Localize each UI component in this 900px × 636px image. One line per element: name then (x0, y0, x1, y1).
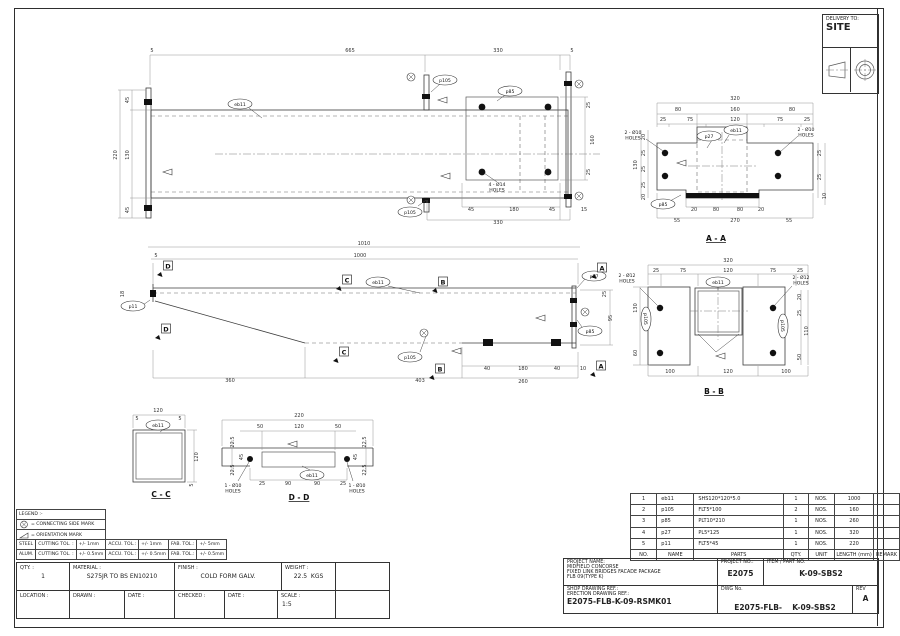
dimension-text: 330 (493, 48, 503, 54)
weight-unit: KGS (311, 573, 323, 580)
parts-cell: p85 (657, 516, 694, 527)
dwg-no-prefix: E2075-FLB- (734, 603, 782, 612)
dimension-text: 80 (713, 207, 719, 213)
dimension-text: 270 (730, 218, 740, 224)
section-marker: D (157, 261, 173, 277)
dimension-text: 120 (153, 408, 163, 414)
parts-cell: 260 (835, 516, 874, 527)
tol-cell: FAB. TOL.: (168, 550, 196, 560)
section-marker: C (336, 275, 352, 291)
svg-text:A: A (599, 265, 604, 273)
tol-cell: ACCU. TOL.: (106, 540, 139, 550)
dimension-text: 5 (150, 48, 153, 54)
hole-note: 1 - Ø10HOLES (225, 482, 242, 495)
parts-cell: eb11 (657, 494, 694, 505)
dimension-text: 10 (822, 193, 828, 199)
dimension-text: 10 (580, 366, 586, 372)
part-balloon: eb11 (300, 470, 324, 480)
project-name-line: FLB 09(TYPE K) (567, 575, 714, 580)
tolerance-row: STEEL CUTTING TOL. : +/- 1mm ACCU. TOL.:… (17, 540, 227, 550)
svg-text:p105: p105 (779, 320, 785, 332)
dimension-text: 55 (786, 218, 792, 224)
svg-text:p27: p27 (705, 134, 714, 140)
parts-cell (874, 527, 900, 538)
shop-ref-cell: SHOP DRAWING REF.: ERECTION DRAWING REF.… (564, 586, 718, 613)
dimension-text: 360 (225, 378, 235, 384)
dimension-text: 25 (817, 174, 823, 180)
parts-cell: 1 (784, 527, 808, 538)
hole-note: 2 - Ø12HOLES (793, 274, 810, 287)
legend-item-text: = ORIENTATION MARK (31, 533, 82, 538)
dimension-text: 25 (586, 102, 592, 108)
section-title: A - A (706, 234, 726, 243)
dimension-text: 1000 (354, 253, 367, 259)
svg-text:B: B (438, 366, 443, 374)
tol-cell: +/- 1mm (139, 540, 169, 550)
dimension-text: 22.5 (362, 436, 368, 447)
dimension-text: 75 (680, 268, 686, 274)
dimension-text: 50 (797, 354, 803, 360)
weight-cell: WEIGHT : 22.5 KGS (282, 563, 336, 591)
elevation-view (148, 247, 613, 378)
scale-value: 1:5 (278, 601, 335, 608)
dimension-text: 22.5 (362, 464, 368, 475)
connecting-side-mark-icon (581, 308, 589, 316)
legend-title: LEGEND :- (17, 510, 105, 519)
parts-row: 1eb11SHS120*120*5.01NOS.1000 (631, 494, 900, 505)
parts-cell: 220 (835, 538, 874, 549)
parts-cell: 1 (631, 494, 657, 505)
dimension-text: 90 (314, 481, 320, 487)
section-sketch-icon (850, 48, 878, 92)
connecting-side-mark-icon (575, 80, 583, 88)
dimension-text: 320 (723, 258, 733, 264)
qty-label: QTY. : (17, 563, 69, 571)
leader-lines (143, 84, 798, 481)
dimension-text: 25 (586, 169, 592, 175)
dimension-text: 25 (340, 481, 346, 487)
parts-cell (874, 538, 900, 549)
dimension-text: 120 (194, 452, 200, 462)
parts-cell: FLT5*100 (694, 505, 784, 516)
svg-text:p85: p85 (586, 329, 595, 335)
orientation-mark-icon (452, 348, 461, 354)
tol-cell: STEEL (17, 540, 36, 550)
dimension-text: 55 (674, 218, 680, 224)
connecting-side-mark-icon (19, 520, 29, 529)
dimension-text: 80 (675, 107, 681, 113)
shop-ref-value: E2075-FLB-K-09-RSMK01 (567, 597, 714, 606)
dimension-text: 25 (259, 481, 265, 487)
drawn-cell: DRAWN : (70, 591, 125, 619)
section-marker: B (429, 364, 445, 380)
dimension-text: 403 (415, 378, 425, 384)
hole-note: 2 - Ø10HOLES (798, 126, 815, 139)
svg-text:D: D (165, 263, 171, 271)
dimension-text: 100 (665, 369, 675, 375)
parts-cell: NOS. (808, 505, 834, 516)
svg-text:p105: p105 (404, 355, 416, 361)
dwg-no-label: DWG No. (721, 587, 849, 592)
dimension-text: 25 (804, 117, 810, 123)
dimension-text: 100 (781, 369, 791, 375)
svg-text:A: A (598, 363, 603, 371)
connecting-side-mark-icon (420, 329, 428, 337)
orientation-mark-icon (677, 160, 686, 166)
dimension-text: 40 (554, 366, 560, 372)
checked-label: CHECKED : (175, 591, 224, 599)
drawn-label: DRAWN : (70, 591, 124, 599)
project-no-cell: PROJECT NO.: E2075 (718, 559, 764, 586)
part-balloon: eb11 (228, 99, 252, 109)
parts-cell (874, 516, 900, 527)
parts-table: 1eb11SHS120*120*5.01NOS.10002p105FLT5*10… (630, 493, 900, 561)
parts-cell: 2 (784, 505, 808, 516)
hole-note: 1 - Ø10HOLES (349, 482, 366, 495)
drawing-sheet: 5665330522045130454518045330152516025101… (0, 0, 900, 636)
parts-cell: 1000 (835, 494, 874, 505)
tol-cell: CUTTING TOL. : (36, 540, 76, 550)
parts-cell: 4 (631, 527, 657, 538)
dimension-text: 25 (653, 268, 659, 274)
dwg-no-suffix: K-09-SBS2 (792, 603, 836, 612)
dimension-text: 90 (285, 481, 291, 487)
scale-label: SCALE : (278, 591, 335, 599)
part-balloon: eb11 (724, 125, 748, 135)
parts-cell: SHS120*120*5.0 (694, 494, 784, 505)
orientation-mark-icon (438, 97, 447, 103)
tol-cell: CUTTING TOL. : (36, 550, 76, 560)
orientation-mark-icon (536, 315, 545, 321)
dimension-text: 60 (633, 350, 639, 356)
finish-value: COLD FORM GALV. (175, 573, 281, 580)
parts-cell: NOS. (808, 494, 834, 505)
section-marker: A (590, 361, 606, 377)
dimension-text: 18 (120, 291, 126, 297)
part-balloon: p85 (651, 199, 675, 209)
dimension-text: 45 (549, 207, 555, 213)
svg-text:B: B (441, 279, 446, 287)
dimension-text: 180 (509, 207, 519, 213)
parts-cell: NOS. (808, 516, 834, 527)
date-label: DATE : (125, 591, 174, 599)
hole-note: 4 - Ø14HOLES (489, 181, 506, 194)
parts-cell: NOS. (808, 527, 834, 538)
svg-text:eb11: eb11 (730, 128, 742, 134)
item-label: ITEM / PART NO. (767, 560, 875, 565)
orientation-mark-icon (288, 441, 297, 447)
dimension-text: 45 (353, 454, 359, 460)
parts-cell: 3 (631, 516, 657, 527)
delivery-value: SITE (826, 22, 875, 33)
dimension-text: 25 (602, 291, 608, 297)
part-balloon: p27 (697, 131, 721, 141)
connecting-side-mark-icon (407, 196, 415, 204)
dimension-text: 25 (797, 310, 803, 316)
part-balloon: eb11 (146, 420, 170, 430)
orientation-mark-icon (716, 353, 725, 359)
weight-number: 22.5 (294, 573, 307, 580)
hole-note: 2 - Ø10HOLES (625, 129, 642, 142)
legend-item-text: = CONNECTING SIDE MARK (31, 522, 94, 527)
svg-text:eb11: eb11 (152, 423, 164, 429)
dimension-text: 75 (777, 117, 783, 123)
parts-cell: p27 (657, 527, 694, 538)
project-name-cell: PROJECT NAME: MIDFIELD CONCORSE FIXED LI… (564, 559, 718, 586)
svg-text:eb11: eb11 (372, 280, 384, 286)
qty-value: 1 (17, 573, 69, 580)
part-balloon: eb11 (366, 277, 390, 287)
project-no-value: E2075 (721, 569, 760, 578)
dimension-text: 45 (125, 207, 131, 213)
svg-text:D: D (163, 326, 169, 334)
part-balloon: p105 (641, 307, 651, 331)
dimension-text: 120 (730, 117, 740, 123)
legend-box: LEGEND :- = CONNECTING SIDE MARK = ORIEN… (16, 509, 106, 540)
qty-cell: QTY. : 1 (17, 563, 70, 591)
section-marker: C (333, 347, 349, 363)
parts-cell: p11 (657, 538, 694, 549)
parts-cell: p105 (657, 505, 694, 516)
parts-row: 3p85PLT10*2101NOS.260 (631, 516, 900, 527)
connecting-side-mark-icon (575, 192, 583, 200)
dimension-text: 25 (641, 150, 647, 156)
svg-text:p105: p105 (404, 210, 416, 216)
dimension-text: 665 (345, 48, 355, 54)
svg-text:p11: p11 (129, 304, 138, 310)
parts-cell: 320 (835, 527, 874, 538)
section-marker: B (432, 277, 448, 293)
svg-text:eb11: eb11 (306, 473, 318, 479)
tol-cell: +/- 0.5mm (139, 550, 169, 560)
parts-cell: 2 (631, 505, 657, 516)
dimension-text: 20 (641, 134, 647, 140)
delivery-box: DELIVERY TO: SITE (822, 14, 879, 94)
svg-text:p85: p85 (506, 89, 515, 95)
parts-row: 2p105FLT5*1002NOS.160 (631, 505, 900, 516)
rev-value: A (856, 594, 875, 603)
section-title: B - B (704, 387, 724, 396)
dimension-text: 5 (189, 483, 195, 486)
tol-cell: +/- 0.5mm (76, 550, 106, 560)
plan-view (118, 55, 600, 220)
dimension-text: 80 (737, 207, 743, 213)
empty-cell (336, 563, 389, 591)
part-balloon: p85 (578, 326, 602, 336)
parts-cell: PLT10*210 (694, 516, 784, 527)
part-balloon: p105 (398, 207, 422, 217)
dimension-text: 5 (135, 416, 138, 422)
dimension-text: 5 (570, 48, 573, 54)
svg-text:eb11: eb11 (712, 280, 724, 286)
material-value: S275JR TO BS EN10210 (70, 573, 174, 580)
dimension-text: 220 (294, 413, 304, 419)
rev-label: REV (856, 587, 875, 592)
parts-cell (874, 494, 900, 505)
tol-cell: +/- 1mm (76, 540, 106, 550)
dimension-text: 220 (113, 150, 119, 160)
parts-cell: FLT5*45 (694, 538, 784, 549)
section-title: D - D (289, 493, 310, 502)
tolerance-table: STEEL CUTTING TOL. : +/- 1mm ACCU. TOL.:… (16, 539, 227, 560)
parts-cell: 1 (784, 494, 808, 505)
dimension-text: 130 (633, 303, 639, 313)
dimension-text: 5 (178, 416, 181, 422)
location-label: LOCATION : (17, 591, 69, 599)
checked-cell: CHECKED : (175, 591, 225, 619)
dimension-text: 120 (723, 268, 733, 274)
part-balloon: eb11 (706, 277, 730, 287)
date-cell: DATE : (125, 591, 175, 619)
part-balloon: p105 (778, 314, 788, 338)
tol-cell: ALUM. (17, 550, 36, 560)
dimension-text: 20 (797, 294, 803, 300)
dimension-text: 15 (581, 207, 587, 213)
part-balloon: p105 (398, 352, 422, 362)
weight-label: WEIGHT : (282, 563, 335, 571)
dimension-text: 80 (789, 107, 795, 113)
date-label: DATE : (225, 591, 277, 599)
parts-cell: 5 (631, 538, 657, 549)
tol-cell: ACCU. TOL.: (106, 550, 139, 560)
hole-note: 2 - Ø12HOLES (619, 272, 636, 285)
title-block-right: PROJECT NAME: MIDFIELD CONCORSE FIXED LI… (563, 558, 879, 614)
dimension-text: 25 (660, 117, 666, 123)
dimension-text: 25 (797, 268, 803, 274)
parts-cell: 160 (835, 505, 874, 516)
dimension-text: 22.5 (230, 436, 236, 447)
connecting-side-mark-icon (407, 73, 415, 81)
dimension-text: 20 (758, 207, 764, 213)
dimension-text: 180 (518, 366, 528, 372)
dimension-text: 40 (484, 366, 490, 372)
dimension-text: 20 (691, 207, 697, 213)
empty-cell (336, 591, 389, 619)
dimension-text: 110 (804, 326, 810, 336)
project-no-label: PROJECT NO.: (721, 560, 760, 565)
material-label: MATERIAL : (70, 563, 174, 571)
tol-cell: +/- 5mm (197, 540, 227, 550)
member-sketch-icon (823, 48, 850, 92)
dimension-text: 22.5 (230, 464, 236, 475)
parts-cell (874, 505, 900, 516)
parts-cell: 1 (784, 516, 808, 527)
dimension-text: 45 (468, 207, 474, 213)
legend-item-connecting: = CONNECTING SIDE MARK (17, 519, 105, 529)
parts-cell: 1 (784, 538, 808, 549)
dimension-text: 1010 (358, 241, 371, 247)
dimension-text: 320 (730, 96, 740, 102)
section-marker: D (155, 324, 171, 340)
dimension-text: 50 (257, 424, 263, 430)
dimension-text: 120 (723, 369, 733, 375)
orientation-mark-icon (163, 169, 172, 175)
scale-cell: SCALE : 1:5 (278, 591, 336, 619)
location-cell: LOCATION : (17, 591, 70, 619)
title-block-left: QTY. : 1 MATERIAL : S275JR TO BS EN10210… (16, 562, 390, 619)
dimension-text: 130 (633, 160, 639, 170)
part-balloon: p105 (433, 75, 457, 85)
dimension-text: 95 (608, 315, 614, 321)
section-title: C - C (151, 490, 171, 499)
parts-row: 5p11FLT5*451NOS.220 (631, 538, 900, 549)
dimension-text: 75 (687, 117, 693, 123)
dimension-text: 25 (817, 150, 823, 156)
orientation-mark-icon (441, 173, 450, 179)
parts-cell: PL5*125 (694, 527, 784, 538)
svg-text:eb11: eb11 (234, 102, 246, 108)
svg-text:p105: p105 (439, 78, 451, 84)
tol-cell: +/- 0.5mm (197, 550, 227, 560)
material-cell: MATERIAL : S275JR TO BS EN10210 (70, 563, 175, 591)
svg-text:C: C (345, 277, 350, 285)
parts-cell: NOS. (808, 538, 834, 549)
part-balloon: p11 (121, 301, 145, 311)
part-balloon: p85 (498, 86, 522, 96)
dimension-text: 5 (154, 253, 157, 259)
svg-text:p105: p105 (642, 313, 648, 325)
dimension-text: 20 (641, 194, 647, 200)
finish-label: FINISH : (175, 563, 281, 571)
dimension-text: 45 (125, 97, 131, 103)
svg-text:p85: p85 (659, 202, 668, 208)
item-cell: ITEM / PART NO. K-09-SBS2 (764, 559, 878, 586)
dimension-text: 130 (125, 150, 131, 160)
dimension-text: 160 (590, 135, 596, 145)
dimension-text: 330 (493, 220, 503, 226)
tolerance-row: ALUM. CUTTING TOL. : +/- 0.5mm ACCU. TOL… (17, 550, 227, 560)
dimension-text: 45 (239, 454, 245, 460)
svg-text:C: C (342, 349, 347, 357)
dimension-text: 25 (641, 182, 647, 188)
rev-cell: REV A (853, 586, 878, 613)
dwg-no-cell: DWG No. E2075-FLB- K-09-SBS2 (718, 586, 853, 613)
dimension-text: 50 (335, 424, 341, 430)
tol-cell: FAB. TOL.: (168, 540, 196, 550)
weight-value: 22.5 KGS (282, 573, 335, 580)
date-cell: DATE : (225, 591, 278, 619)
parts-row: 4p27PL5*1251NOS.320 (631, 527, 900, 538)
finish-cell: FINISH : COLD FORM GALV. (175, 563, 282, 591)
dimension-text: 160 (730, 107, 740, 113)
dimension-text: 120 (294, 424, 304, 430)
dimension-text: 25 (641, 166, 647, 172)
item-value: K-09-SBS2 (767, 569, 875, 578)
dimension-text: 75 (770, 268, 776, 274)
dimension-text: 260 (518, 379, 528, 385)
